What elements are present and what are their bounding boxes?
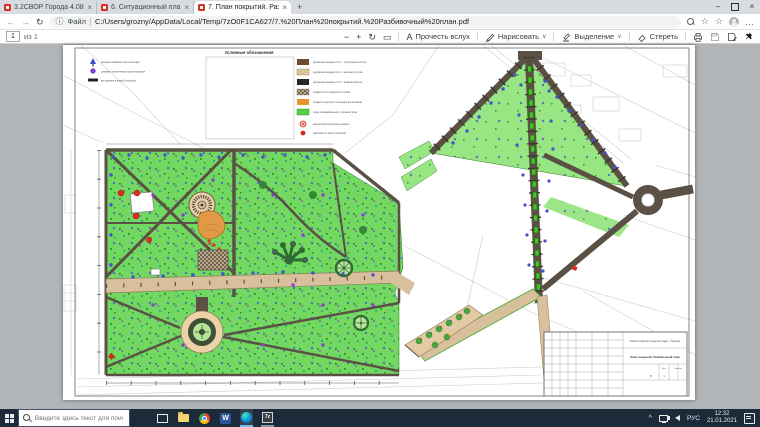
search-input[interactable]	[33, 414, 125, 423]
round-plaza-east	[633, 185, 693, 215]
left-park	[99, 144, 403, 383]
pin-icon[interactable]	[744, 32, 754, 42]
legend-deciduous-icon	[91, 69, 96, 74]
sheets-label: Листов	[674, 368, 682, 370]
rotate-button[interactable]: ↻	[368, 32, 376, 42]
legend-spruce-icon	[90, 58, 96, 64]
clock[interactable]: 12:32 21.01.2021	[707, 411, 737, 425]
stage-label: Лист	[662, 368, 667, 370]
date: 21.01.2021	[707, 418, 737, 424]
title-block: Благоустройство городского сада, г. Гроз…	[544, 332, 687, 396]
pdf-tools: − + ↻ ▭ А Прочесть вслух Нарисовать ∨	[344, 32, 754, 42]
close-icon[interactable]: ×	[282, 4, 287, 12]
edge-icon[interactable]	[240, 409, 253, 427]
legend-swatches	[297, 59, 309, 135]
time: 12:32	[714, 411, 729, 417]
chevron-down-icon[interactable]: ∨	[617, 33, 621, 40]
notification-center-icon[interactable]	[744, 413, 755, 424]
legend-label: кустарники в живой изгороди	[101, 79, 137, 83]
pdf-plan-drawing: Условные обозначения деревья хвойные (ел…	[63, 45, 695, 400]
tab-title: 6. Ситуационный план.pdf	[111, 4, 181, 11]
erase-button[interactable]: Стереть	[637, 32, 678, 42]
7zip-icon[interactable]: 7z	[261, 409, 274, 427]
address-bar[interactable]: ⓘ Файл C:/Users/grozny/AppData/Local/Tem…	[50, 16, 681, 28]
save-icon[interactable]	[710, 32, 720, 42]
back-button[interactable]: ←	[6, 15, 15, 29]
pdf-file-icon	[101, 4, 108, 11]
save-as-icon[interactable]	[727, 32, 737, 42]
zoom-search-icon[interactable]	[687, 18, 695, 26]
language-indicator[interactable]: РУС	[687, 415, 700, 422]
legend-label: дорожная одежда тип 1 - тротуарная плитк…	[313, 60, 367, 64]
browser-tab-bar: 3.2СВОР Города 4.08.pdf × 6. Ситуационны…	[0, 0, 760, 14]
pdf-toolbar: из 1 − + ↻ ▭ А Прочесть вслух Нарисовать…	[0, 30, 760, 44]
search-icon	[23, 414, 30, 422]
file-explorer-icon[interactable]	[177, 409, 190, 427]
paved-chess-area	[198, 250, 228, 270]
small-kiosk	[151, 269, 160, 275]
legend-label: деревья лиственные существующие	[101, 71, 146, 74]
toolbar-divider	[685, 32, 686, 41]
highlighter-icon	[561, 32, 571, 42]
start-button[interactable]	[0, 409, 18, 427]
read-aloud-label: Прочесть вслух	[416, 32, 470, 41]
toolbar-divider	[477, 32, 478, 41]
windows-taskbar: W 7z ^ РУС 12:32 21.01.2021	[0, 409, 760, 427]
playground-surface	[198, 211, 225, 239]
eraser-icon	[637, 32, 647, 42]
legend-label: малые архитектурные формы	[313, 122, 349, 126]
erase-label: Стереть	[650, 32, 678, 41]
task-view-button[interactable]	[156, 409, 169, 427]
pen-icon	[485, 32, 495, 42]
stage-value: П	[650, 374, 652, 378]
address-divider	[90, 18, 91, 26]
triangle-park	[399, 51, 693, 303]
pinned-apps: W 7z	[156, 409, 274, 427]
desktop: 3.2СВОР Города 4.08.pdf × 6. Ситуационны…	[0, 0, 760, 427]
pdf-viewer-area: Условные обозначения деревья хвойные (ел…	[0, 44, 760, 409]
read-aloud-icon: А	[406, 32, 412, 42]
toolbar-divider	[398, 32, 399, 41]
close-icon[interactable]: ×	[87, 4, 92, 12]
window-controls: – ×	[710, 0, 760, 14]
forward-button[interactable]: →	[21, 15, 30, 29]
sheet-title: План покрытий. Разбивочный план	[630, 355, 680, 359]
new-tab-button[interactable]: +	[291, 1, 308, 14]
chrome-icon[interactable]	[198, 409, 211, 427]
legend-label: цветники из многолетников	[313, 132, 346, 135]
windows-logo-icon	[5, 414, 14, 423]
highlight-button[interactable]: Выделение ∨	[561, 32, 621, 42]
pdf-file-icon	[198, 4, 205, 11]
taskbar-search[interactable]	[18, 409, 130, 427]
legend-title: Условные обозначения	[225, 50, 274, 55]
info-icon[interactable]: ⓘ	[56, 16, 64, 27]
legend-label: покрытие из гранитного отсева	[313, 91, 351, 94]
close-window-button[interactable]: ×	[744, 0, 760, 14]
maximize-button[interactable]	[731, 3, 739, 11]
zoom-out-button[interactable]: −	[344, 32, 349, 42]
zoom-in-button[interactable]: +	[356, 32, 361, 42]
tab-title: 3.2СВОР Города 4.08.pdf	[14, 4, 84, 11]
volume-icon[interactable]	[675, 415, 680, 421]
fountain-plaza	[181, 311, 223, 353]
tab-title: 7. План покрытий. Разбивочн...	[208, 4, 279, 11]
address-scheme-label: Файл	[68, 17, 86, 26]
legend-label: деревья хвойные (ель колючая)	[101, 60, 140, 64]
system-tray: ^ РУС 12:32 21.01.2021	[649, 409, 760, 427]
favorites-bar-icon[interactable]: ☆	[715, 16, 723, 27]
favorite-star-icon[interactable]: ☆	[701, 16, 709, 27]
chevron-down-icon[interactable]: ∨	[542, 33, 546, 40]
settings-menu-icon[interactable]: …	[745, 17, 754, 27]
tab-svod-gorod[interactable]: 3.2СВОР Города 4.08.pdf ×	[0, 1, 97, 14]
legend: Условные обозначения деревья хвойные (ел…	[88, 50, 367, 139]
page-count-label: из 1	[24, 32, 38, 41]
round-flowerbed	[354, 316, 368, 330]
profile-avatar[interactable]	[729, 17, 739, 27]
toolbar-divider	[553, 32, 554, 41]
address-url: C:/Users/grozny/AppData/Local/Temp/7zO0F…	[95, 17, 469, 26]
pdf-file-icon	[4, 4, 11, 11]
page-number-input[interactable]	[6, 31, 20, 42]
minimize-button[interactable]: –	[710, 0, 726, 14]
legend-shrub-icon	[88, 79, 98, 82]
tab-plan-pokrytiy-active[interactable]: 7. План покрытий. Разбивочн... ×	[194, 1, 291, 14]
legend-label: дорожная одежда тип 2 - цветная плитка	[313, 70, 363, 74]
legend-label: газон обыкновенный с посевом трав	[313, 110, 358, 114]
pdf-page: Условные обозначения деревья хвойные (ел…	[63, 45, 695, 400]
hidden-icons-chevron[interactable]: ^	[649, 415, 652, 422]
toolbar-divider	[629, 32, 630, 41]
draw-label: Нарисовать	[498, 32, 539, 41]
close-icon[interactable]: ×	[184, 4, 189, 12]
highlight-label: Выделение	[574, 32, 614, 41]
read-aloud-button[interactable]: А Прочесть вслух	[406, 32, 469, 42]
legend-label: покрытие детских площадок (резиновое)	[313, 100, 362, 104]
project-name: Благоустройство городского сада, г. Гроз…	[630, 340, 680, 343]
tab-situacionny-plan[interactable]: 6. Ситуационный план.pdf ×	[97, 1, 194, 14]
network-icon[interactable]	[659, 415, 668, 422]
browser-toolbar: ← → ↻ ⓘ Файл C:/Users/grozny/AppData/Loc…	[0, 14, 760, 30]
south-promenade	[391, 271, 555, 393]
word-icon[interactable]: W	[219, 409, 232, 427]
draw-button[interactable]: Нарисовать ∨	[485, 32, 547, 42]
fit-to-page-button[interactable]: ▭	[383, 32, 392, 42]
reload-button[interactable]: ↻	[36, 15, 44, 29]
print-icon[interactable]	[693, 32, 703, 42]
legend-label: дорожная одежда тип 3 - асфальтобетон	[313, 80, 363, 84]
pavilion-building	[130, 192, 154, 213]
